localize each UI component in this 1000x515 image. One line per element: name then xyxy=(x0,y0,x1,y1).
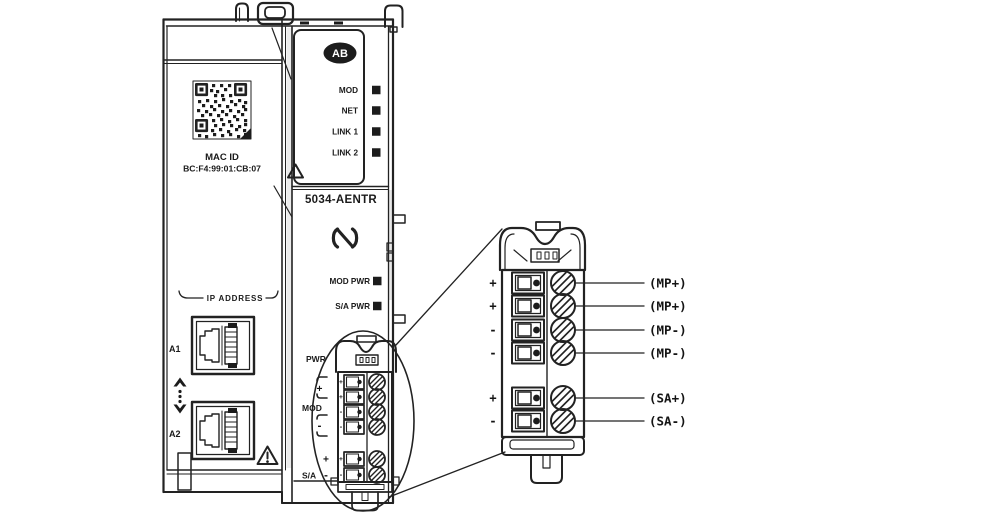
led-indicator xyxy=(373,277,382,286)
side-tab xyxy=(393,215,405,223)
qr-code xyxy=(193,81,251,139)
power-terminal-block: PWR + MOD - + S/A - xyxy=(302,336,399,511)
status-led-mod: MOD xyxy=(339,86,381,95)
wire-label: (MP+) xyxy=(649,299,687,314)
power-led-label: MOD PWR xyxy=(330,277,371,286)
ip-address-section: IP ADDRESS xyxy=(179,291,278,303)
led-indicator xyxy=(372,106,381,115)
terminal-sign: + xyxy=(339,455,343,463)
led-indicator xyxy=(372,127,381,136)
mac-id-value: BC:F4:99:01:CB:07 xyxy=(183,164,261,174)
status-led-label: LINK 2 xyxy=(332,149,358,158)
port-a1-label: A1 xyxy=(169,344,181,354)
warning-icon xyxy=(258,447,278,465)
status-led-link1: LINK 1 xyxy=(332,127,380,136)
wire-label: (MP-) xyxy=(649,346,687,361)
power-led-mod-pwr: MOD PWR xyxy=(330,277,382,286)
terminal-sign: - xyxy=(489,323,496,337)
terminal-sign: - xyxy=(489,414,496,428)
module-terminal-row-2: + xyxy=(339,389,385,405)
detail-terminal-row-2: + (MP+) xyxy=(489,294,686,318)
power-led-sa-pwr: S/A PWR xyxy=(335,302,381,311)
terminal-sign: - xyxy=(339,471,343,479)
wire-label: (MP-) xyxy=(649,323,687,338)
status-led-label: NET xyxy=(342,107,358,116)
led-indicator xyxy=(372,86,381,95)
detail-terminal-row-3: - (MP-) xyxy=(489,318,686,342)
detail-terminal-row-1: + (MP+) xyxy=(489,271,686,295)
hinge-shading xyxy=(287,28,292,468)
wiring-diagram: MAC ID BC:F4:99:01:CB:07 IP ADDRESS A1 xyxy=(0,0,1000,515)
mac-id-label: MAC ID xyxy=(205,152,239,163)
mounting-foot xyxy=(178,453,191,490)
status-led-label: LINK 1 xyxy=(332,128,358,137)
module-terminal-row-3: - xyxy=(339,404,385,420)
link-arrows-icon xyxy=(174,378,187,414)
detail-terminal-row-6: - (SA-) xyxy=(489,409,686,433)
front-door: MAC ID BC:F4:99:01:CB:07 IP ADDRESS A1 xyxy=(169,81,278,464)
mod-group-bracket2: - xyxy=(317,415,327,436)
detail-connector-top xyxy=(500,222,585,270)
wire-label: (SA+) xyxy=(649,391,687,406)
status-led-net: NET xyxy=(342,106,381,115)
status-panel: AB MOD NET LINK 1 LINK 2 xyxy=(288,30,389,190)
module-terminal-row-5: + xyxy=(339,451,385,467)
ip-address-label: IP ADDRESS xyxy=(207,294,263,303)
callout-lines xyxy=(389,229,505,497)
module-terminal-row-1: + xyxy=(339,374,385,390)
terminal-sign: - xyxy=(339,423,343,431)
pwr-label: PWR xyxy=(306,354,326,364)
module-terminal-row-4: - xyxy=(339,419,385,435)
terminal-sign: - xyxy=(339,408,343,416)
brand-logo-text: AB xyxy=(332,48,348,60)
model-label: 5034-AENTR xyxy=(305,194,377,206)
side-tab xyxy=(393,315,405,323)
led-indicator xyxy=(372,148,381,157)
wire-label: (MP+) xyxy=(649,276,687,291)
terminal-sign: + xyxy=(489,276,496,290)
terminal-sign: + xyxy=(489,299,496,313)
port-a2-label: A2 xyxy=(169,429,181,439)
detail-terminal-row-5: + (SA+) xyxy=(489,386,686,410)
ethernet-port-a1: A1 xyxy=(169,317,254,374)
wiring-diagram-page: MAC ID BC:F4:99:01:CB:07 IP ADDRESS A1 xyxy=(0,0,1000,515)
nfc-icon xyxy=(333,229,356,247)
wire-label: (SA-) xyxy=(649,414,687,429)
terminal-sign: + xyxy=(339,393,343,401)
sa-group-label: S/A xyxy=(302,471,316,481)
led-indicator xyxy=(373,302,382,311)
status-led-label: MOD xyxy=(339,86,358,95)
brand-logo: AB xyxy=(324,43,357,64)
terminal-sign: - xyxy=(489,346,496,360)
terminal-sign: + xyxy=(489,391,496,405)
power-led-label: S/A PWR xyxy=(335,302,370,311)
connector-body: + + - - + xyxy=(338,372,392,483)
mod-minus-sign: - xyxy=(317,421,323,432)
terminal-sign: + xyxy=(339,378,343,386)
status-led-link2: LINK 2 xyxy=(332,148,380,157)
adapter-module: MAC ID BC:F4:99:01:CB:07 IP ADDRESS A1 xyxy=(164,3,406,511)
detail-connector-base xyxy=(502,437,584,483)
din-rail-clip xyxy=(236,4,248,22)
sa-plus-sign: + xyxy=(323,454,329,465)
detail-terminal-row-4: - (MP-) xyxy=(489,341,686,365)
module-terminal-row-6: - xyxy=(339,467,385,483)
terminal-detail-view: + (MP+) + (MP+) - (MP-) - (MP-) xyxy=(489,222,686,483)
din-latch xyxy=(258,3,293,24)
mod-plus-sign: + xyxy=(317,384,323,395)
